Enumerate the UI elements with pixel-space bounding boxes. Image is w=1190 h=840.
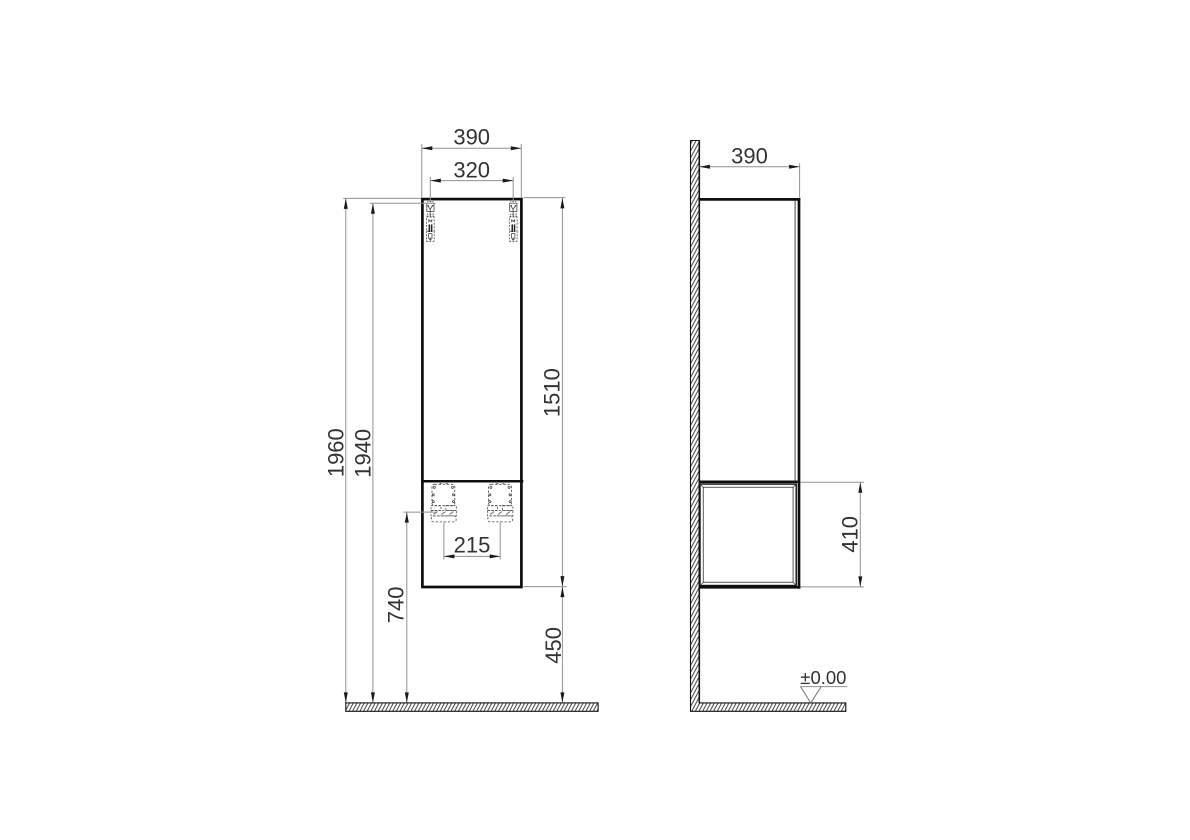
svg-text:±0.00: ±0.00: [800, 667, 846, 688]
svg-text:740: 740: [384, 587, 409, 624]
svg-text:1510: 1510: [540, 368, 565, 417]
svg-text:215: 215: [454, 532, 491, 557]
svg-text:320: 320: [453, 157, 490, 182]
svg-text:410: 410: [838, 516, 863, 553]
svg-text:1940: 1940: [351, 429, 376, 478]
svg-text:1960: 1960: [324, 428, 349, 477]
svg-text:390: 390: [731, 144, 768, 169]
svg-text:450: 450: [541, 627, 566, 664]
svg-text:390: 390: [453, 125, 490, 150]
